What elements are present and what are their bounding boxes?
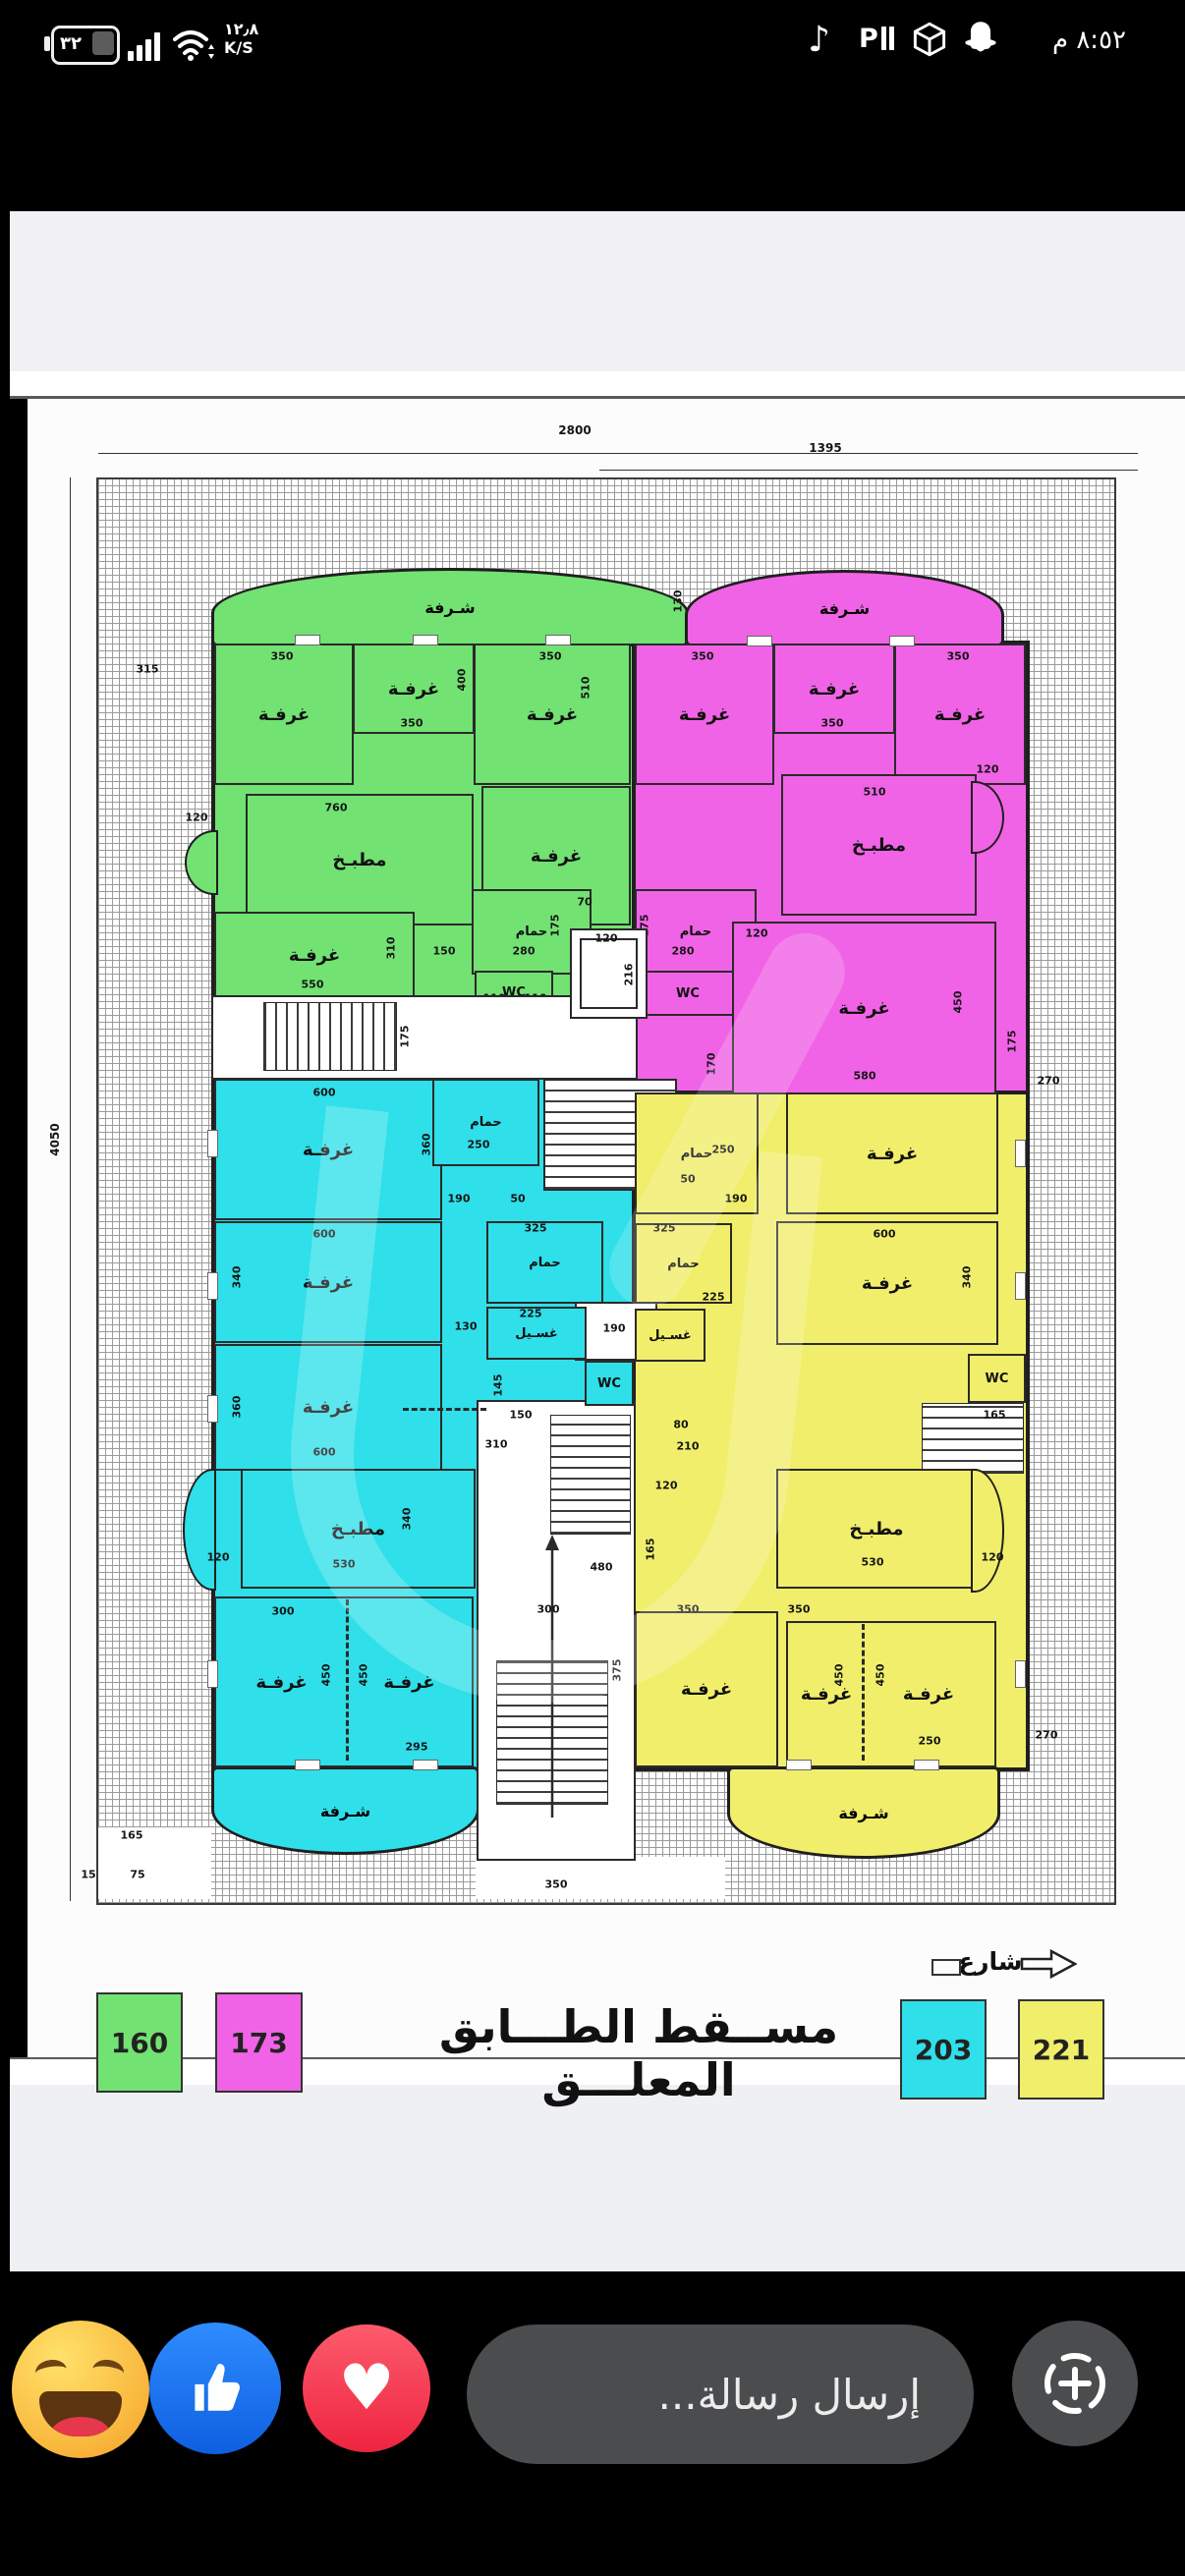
dim-label: 280 (672, 945, 695, 958)
video-player-icon: P (859, 24, 894, 54)
window-marker (786, 1760, 812, 1770)
dim-label: 360 (231, 1396, 244, 1419)
window-marker (413, 1760, 438, 1770)
dim-label: 510 (580, 677, 592, 700)
street-marker (931, 1959, 961, 1976)
dim-label: 295 (406, 1741, 428, 1754)
room: غرفـة (474, 644, 631, 785)
tiktok-icon: ♪ (808, 20, 830, 60)
wc: WC (642, 971, 734, 1016)
dim-label: 75 (130, 1869, 144, 1881)
message-input[interactable]: إرسال رسالة... (467, 2324, 974, 2464)
dim-label: 70 (577, 896, 592, 909)
window-marker (914, 1760, 939, 1770)
dim-label: 350 (271, 650, 294, 663)
window-marker (413, 635, 438, 645)
dim-label: 350 (788, 1603, 811, 1616)
balcony-cyan: شـرفة (211, 1766, 480, 1855)
room: غرفـة (894, 644, 1026, 785)
dim-label: 340 (961, 1266, 974, 1289)
window-marker (545, 635, 571, 645)
dimension-line (98, 453, 1138, 454)
dim-label: 2800 (558, 423, 591, 437)
dim-label: 150 (433, 945, 456, 958)
legend-green: 160 (96, 1992, 183, 2093)
dim-label: 120 (186, 812, 208, 824)
legend-yellow: 221 (1018, 1999, 1104, 2100)
dim-label: 510 (864, 786, 886, 799)
room: غرفـة (214, 644, 354, 785)
window-marker (207, 1130, 218, 1157)
window-marker (747, 636, 772, 646)
balcony-yellow: شـرفة (727, 1766, 1000, 1859)
dim-label: 350 (947, 650, 970, 663)
window-marker (207, 1660, 218, 1688)
dim-label: 120 (977, 763, 999, 776)
create-sticker-button[interactable] (1012, 2321, 1138, 2446)
cube-icon (912, 22, 947, 57)
dim-label: 216 (623, 964, 636, 986)
wifi-icon (171, 28, 214, 63)
image-top-band (10, 211, 1185, 371)
legend-magenta: 173 (215, 1992, 303, 2093)
dim-label: 310 (385, 937, 398, 960)
dim-label: 1395 (809, 441, 841, 455)
dimension-line (70, 477, 71, 1901)
street-arrow-icon (1020, 1949, 1077, 1979)
thumbs-up-icon (183, 2356, 248, 2421)
heart-icon: ♥ (338, 2352, 394, 2425)
window-marker (1015, 1272, 1026, 1300)
window-marker (207, 1272, 218, 1300)
room: غرفـة (786, 1621, 867, 1767)
legend-cyan: 203 (900, 1999, 987, 2100)
window-marker (889, 636, 915, 646)
dashed-partition (346, 1599, 349, 1761)
kitchen: مطبـخ (776, 1469, 977, 1589)
status-time: ٨:٥٢ م (1022, 26, 1126, 55)
battery-icon: ٣٢ (51, 26, 120, 65)
dim-label: 450 (833, 1664, 846, 1687)
dim-label: 165 (984, 1409, 1006, 1422)
dim-label: 250 (919, 1735, 941, 1748)
dim-label: 550 (302, 979, 324, 991)
dim-label: 175 (1006, 1031, 1019, 1053)
dim-label: 270 (1036, 1729, 1058, 1742)
dim-label: 450 (952, 991, 965, 1014)
love-reaction-button[interactable]: ♥ (303, 2324, 430, 2452)
dashed-plus-icon (1038, 2346, 1112, 2421)
dim-label: 450 (320, 1664, 333, 1687)
dim-label: 270 (1038, 1075, 1060, 1088)
dashed-partition (862, 1624, 865, 1761)
snapchat-icon (963, 20, 998, 57)
dim-label: 350 (692, 650, 714, 663)
dim-label: 530 (862, 1556, 884, 1569)
kitchen: مطبـخ (246, 794, 474, 925)
dim-label: 400 (456, 669, 469, 692)
staircase-upper (263, 1002, 397, 1071)
dim-label: 165 (121, 1829, 143, 1842)
dim-label: 350 (539, 650, 562, 663)
image-bottom-band (10, 2085, 1185, 2271)
dim-label: 350 (401, 717, 423, 730)
dim-label: 450 (875, 1664, 887, 1687)
dim-label: 120 (746, 927, 768, 940)
battery-percent: ٣٢ (60, 33, 82, 54)
dim-label: 350 (821, 717, 844, 730)
dim-label: 130 (672, 590, 685, 613)
dim-label: 120 (595, 932, 618, 945)
window-marker (295, 1760, 320, 1770)
window-marker (207, 1395, 218, 1423)
dim-label: 600 (874, 1228, 896, 1241)
window-marker (295, 635, 320, 645)
dim-label: 760 (325, 802, 348, 814)
duct-stairs (922, 1403, 1024, 1474)
dim-label: 315 (137, 663, 159, 676)
phone-screen: ٣٢ ١٢٫٨ K/S ♪ P ٨:٥٢ م (0, 0, 1185, 2576)
dim-label: 340 (231, 1266, 244, 1289)
dim-label: 120 (207, 1551, 230, 1564)
like-reaction-button[interactable] (149, 2323, 281, 2454)
dimension-line (599, 470, 1138, 471)
dim-label: 280 (513, 945, 536, 958)
dim-label: 580 (854, 1070, 876, 1083)
network-speed: ١٢٫٨ K/S (224, 20, 258, 57)
window-marker (1015, 1660, 1026, 1688)
street-label: شارع (958, 1947, 1022, 1976)
dim-label: 175 (399, 1026, 412, 1048)
dim-label: 175 (549, 915, 562, 937)
dim-label: 15 (81, 1869, 95, 1881)
room: غرفـة (635, 644, 774, 785)
dim-label: 4050 (48, 1123, 62, 1155)
laugh-reaction-button[interactable] (12, 2321, 149, 2458)
message-placeholder: إرسال رسالة... (658, 2371, 921, 2419)
dim-label: 450 (358, 1664, 370, 1687)
dim-label: 120 (982, 1551, 1004, 1564)
plan-title: مســقط الطـــابق المعلـــق (393, 2000, 884, 2106)
window-marker (1015, 1140, 1026, 1167)
dim-label: 600 (313, 1087, 336, 1099)
wc: WC (968, 1354, 1026, 1403)
dim-label: 300 (272, 1605, 295, 1618)
dim-label: 350 (545, 1878, 568, 1891)
